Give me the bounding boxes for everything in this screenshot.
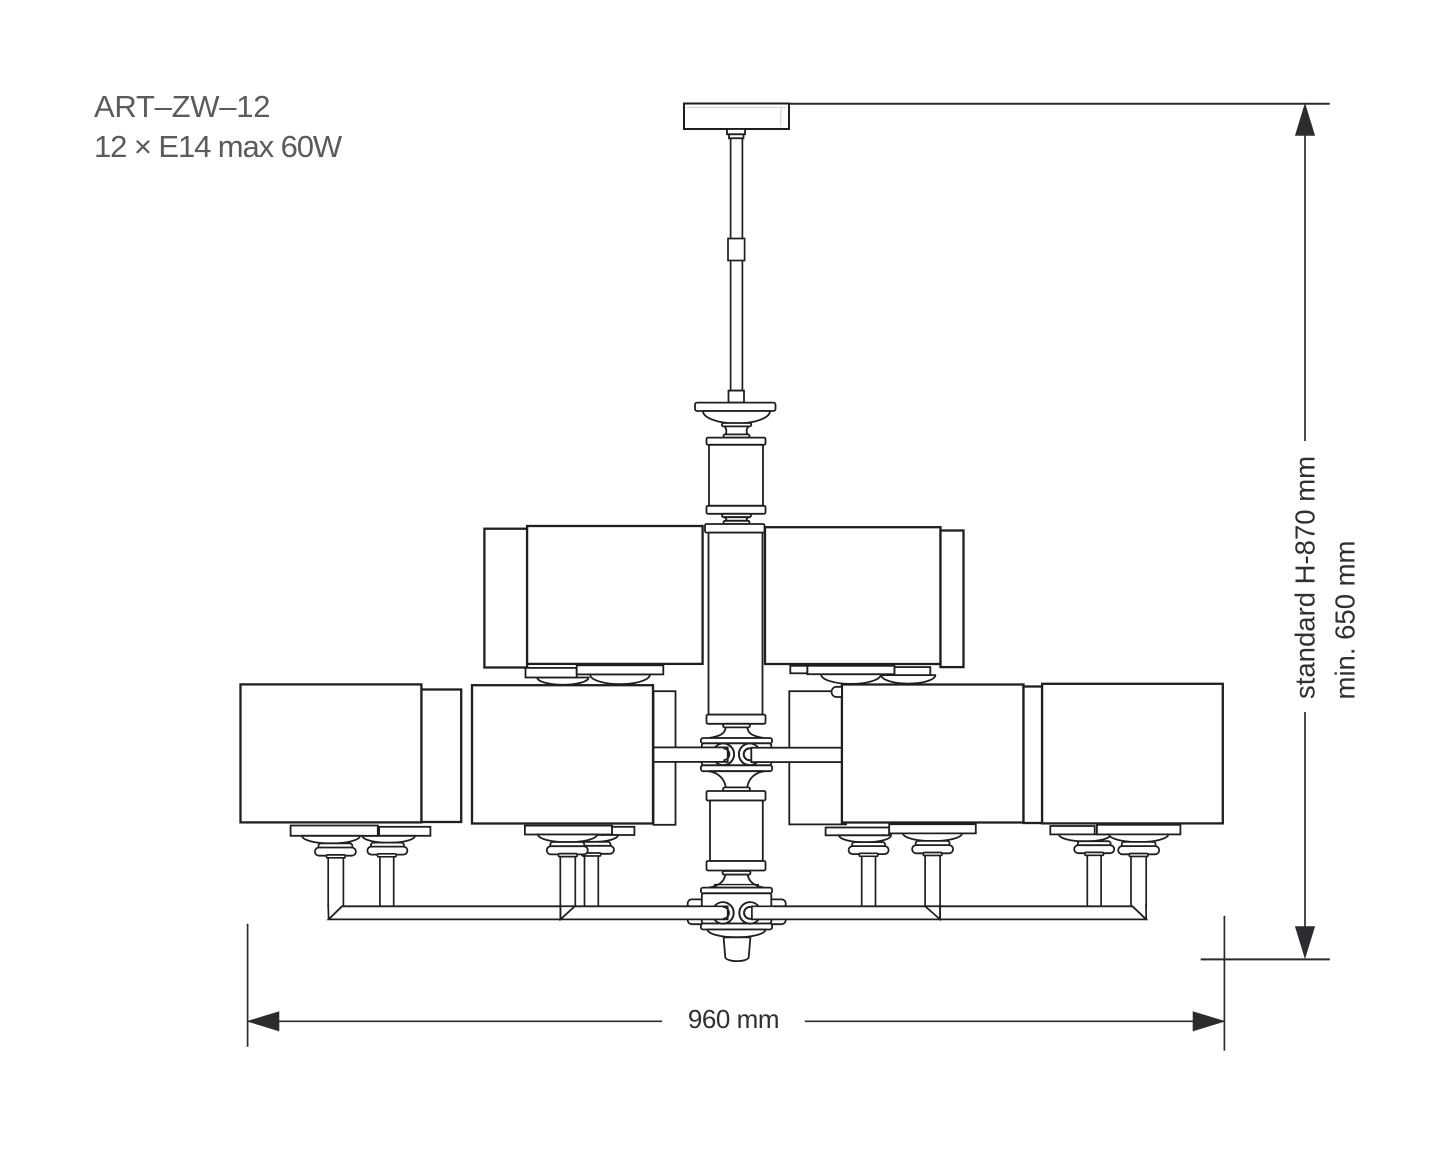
svg-text:standard H-870 mm: standard H-870 mm	[1290, 456, 1321, 699]
svg-text:960 mm: 960 mm	[688, 1004, 779, 1034]
svg-text:min. 650 mm: min. 650 mm	[1330, 541, 1361, 700]
